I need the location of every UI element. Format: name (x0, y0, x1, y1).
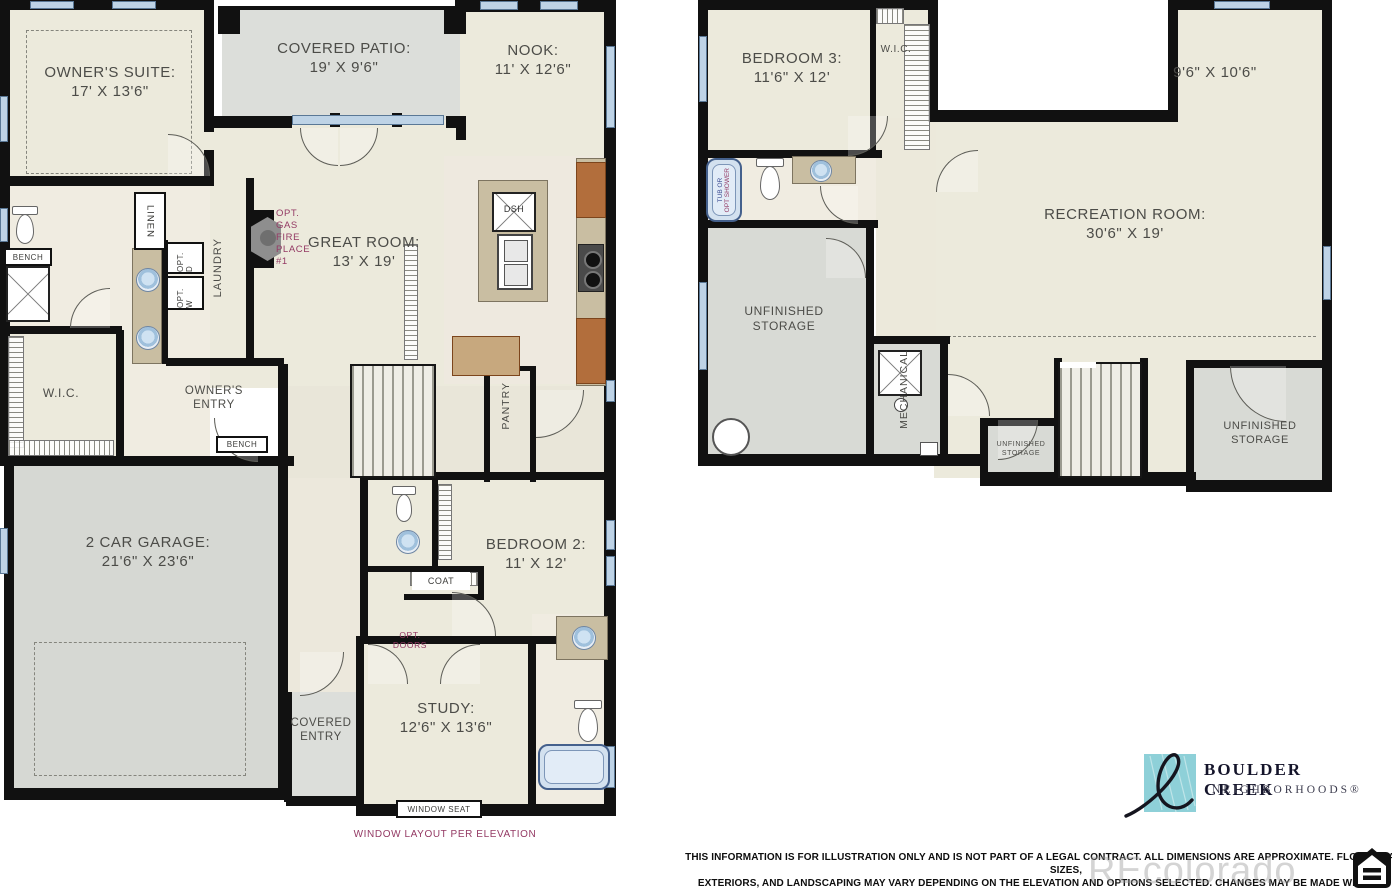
vanity-sink (136, 326, 160, 350)
storage-right-label: UNFINISHEDSTORAGE (1204, 420, 1316, 448)
window (0, 528, 8, 574)
covered-entry-label: COVEREDENTRY (288, 716, 354, 745)
patio-edge (222, 6, 466, 10)
garage-parking-outline (34, 642, 246, 776)
bedroom2-label: BEDROOM 2:11' X 12' (456, 536, 616, 574)
toilet (574, 700, 602, 742)
wall-segment (930, 110, 1176, 122)
bath-sink (396, 530, 420, 554)
rec-room-option-line (938, 336, 1316, 337)
bathtub (538, 744, 610, 790)
wall-segment (4, 458, 14, 798)
wall-segment (0, 176, 212, 186)
garage-label: 2 CAR GARAGE:21'6" X 23'6" (48, 534, 248, 572)
patio-post (218, 6, 240, 34)
window (699, 36, 707, 102)
opt-washer-box: OPT. W (166, 276, 204, 310)
bath2-sink (572, 626, 596, 650)
bench-label-entry: BENCH (216, 436, 268, 453)
tub-or-shower: TUB OR OPT SHOWER (706, 158, 742, 222)
stairs-first-floor (350, 364, 436, 478)
patio-window-row (292, 115, 444, 125)
wall-segment (166, 358, 284, 366)
shower-with-bench (6, 266, 50, 322)
great-room-label: GREAT ROOM:13' X 19' (308, 234, 420, 272)
window (480, 1, 518, 10)
built-in-bench (452, 336, 520, 376)
window-layout-note: WINDOW LAYOUT PER ELEVATION (330, 829, 560, 842)
basement-sink (810, 160, 832, 182)
lower-cabinet (576, 318, 606, 384)
window (112, 1, 156, 9)
wall-segment (4, 788, 288, 800)
wall-segment (210, 116, 292, 128)
window (606, 380, 615, 402)
fireplace (246, 210, 274, 268)
upper-cabinet (576, 162, 606, 218)
wall-segment (1168, 0, 1178, 122)
toilet (12, 206, 38, 244)
owners-entry-label: OWNER'SENTRY (176, 384, 252, 413)
rec-room-label: RECREATION ROOM:30'6" X 19' (1030, 206, 1220, 244)
covered-entry-floor (286, 692, 358, 802)
storage-large-label: UNFINISHEDSTORAGE (728, 304, 840, 334)
bedroom3-label: BEDROOM 3:11'6" X 12' (712, 50, 872, 88)
coat-closet-label: COAT (412, 572, 470, 590)
floor-plan-sheet: DSH BENCH OPT. D OPT. W OPT. GAS (0, 0, 1392, 891)
wall-segment (484, 366, 490, 482)
nook-label: NOOK:11' X 12'6" (460, 42, 606, 80)
window (1323, 246, 1331, 300)
wall-segment (356, 636, 364, 812)
patio-post (444, 6, 466, 34)
wall-segment (456, 116, 466, 140)
stair-landing-mark (1060, 362, 1096, 368)
linen-closet: LINEN (134, 192, 166, 250)
window (540, 1, 578, 10)
range-stove (578, 244, 604, 292)
wall-segment (360, 472, 368, 644)
water-heater (712, 418, 750, 456)
wall-segment (940, 336, 948, 462)
kitchen-sink-double (497, 234, 533, 290)
stairs-basement (1058, 362, 1142, 478)
toilet (756, 158, 784, 200)
wall-segment (1186, 480, 1332, 492)
boulder-creek-logo: BOULDER CREEK NEIGHBORHOODS® (1122, 736, 1372, 828)
logo-text-2: NEIGHBORHOODS® (1212, 784, 1372, 796)
window (1214, 1, 1270, 9)
closet-rod-hatch (8, 440, 114, 456)
wall-segment (278, 456, 288, 800)
vanity-sink (136, 268, 160, 292)
flex-space-label: 9'6" X 10'6" (1150, 64, 1280, 83)
mech-box (920, 442, 938, 456)
window (606, 46, 615, 128)
dishwasher-label: DSH (496, 204, 532, 215)
wall-segment (356, 804, 616, 816)
wall-segment (278, 364, 288, 464)
window-seat: WINDOW SEAT (396, 800, 482, 818)
covered-patio-label: COVERED PATIO:19' X 9'6" (264, 40, 424, 78)
wall-segment (528, 640, 536, 812)
wic-label: W.I.C. (30, 386, 92, 401)
mechanical-label: MECHANICAL (898, 350, 911, 450)
wall-segment (116, 330, 124, 464)
storage-small-label: UNFINISHEDSTORAGE (988, 440, 1054, 458)
window (0, 208, 8, 242)
wall-segment (870, 336, 950, 344)
toilet (392, 486, 416, 522)
pantry-label: PANTRY (500, 382, 513, 472)
opt-dryer-box: OPT. D (166, 242, 204, 274)
closet-rod-hatch (438, 484, 452, 560)
window (699, 282, 707, 370)
equal-housing-icon (1352, 846, 1392, 890)
bench-label-bath: BENCH (4, 248, 52, 266)
wall-segment (455, 0, 615, 12)
owners-suite-label: OWNER'S SUITE:17' X 13'6" (30, 64, 190, 102)
wall-segment (204, 0, 214, 132)
basement-hall-floor (876, 118, 936, 340)
laundry-label: LAUNDRY (212, 238, 226, 330)
basement-wic-label: W.I.C. (868, 44, 924, 57)
wall-segment (1186, 360, 1194, 488)
closet-rod-hatch (8, 336, 24, 448)
study-label: STUDY:12'6" X 13'6" (364, 700, 528, 738)
closet-rod-hatch (904, 24, 930, 150)
closet-rod-hatch (876, 8, 904, 24)
window (0, 96, 8, 142)
wall-segment (286, 796, 364, 806)
opt-doors-note: OPT.DOORS (384, 630, 436, 650)
window (30, 1, 74, 9)
wall-segment (980, 418, 988, 480)
recolorado-watermark: REcolorado (1088, 850, 1297, 891)
wall-segment (866, 226, 874, 464)
wall-segment (246, 178, 254, 364)
